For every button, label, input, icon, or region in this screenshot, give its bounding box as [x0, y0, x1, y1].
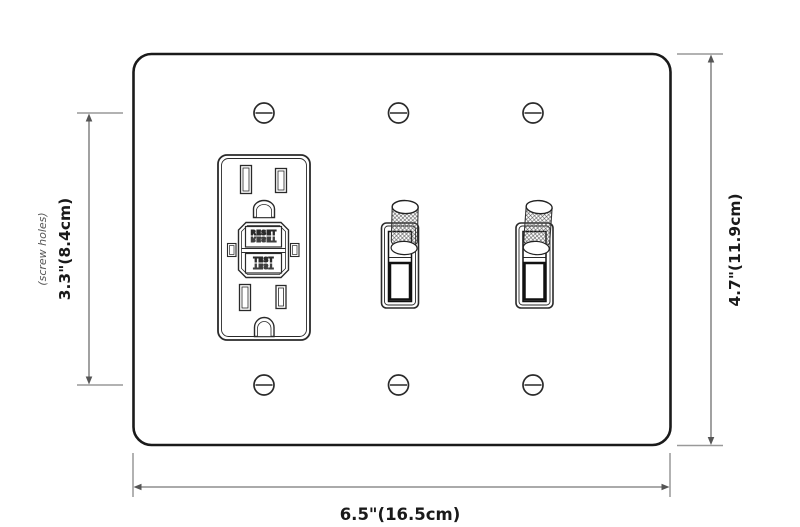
screw-holes-note: (screw holes): [36, 212, 49, 285]
arrow-down-icon: [86, 377, 93, 385]
gfci-test-label-mirror: TEST: [253, 262, 273, 270]
gfci-reset-button: RESET RESET: [246, 227, 282, 248]
plate-height-label: 4.7"(11.9cm): [726, 193, 744, 306]
arrow-right-icon: [662, 484, 670, 491]
screw-bottom-right-icon: [523, 375, 543, 395]
screw-top-left-icon: [254, 103, 274, 123]
gfci-bottom-ground-hole: [255, 318, 275, 337]
screw-bottom-center-icon: [389, 375, 409, 395]
gfci-reset-label-mirror: RESET: [251, 235, 277, 243]
toggle-lever-1: [391, 200, 418, 255]
gfci-test-button: TEST TEST: [246, 254, 282, 274]
toggle-lever-2: [523, 200, 553, 256]
gfci-top-ground-hole: [254, 201, 275, 218]
diagram-canvas: RESET RESET TEST TEST: [0, 0, 800, 527]
wall-plate-diagram: RESET RESET TEST TEST: [0, 0, 800, 527]
screw-top-right-icon: [523, 103, 543, 123]
dim-width: 6.5"(16.5cm): [133, 453, 670, 524]
screw-spacing-label: 3.3"(8.4cm): [56, 198, 74, 301]
arrow-left-icon: [134, 484, 142, 491]
dim-height: 4.7"(11.9cm): [677, 54, 744, 446]
arrow-up-icon: [708, 55, 715, 63]
plate-width-label: 6.5"(16.5cm): [340, 505, 461, 524]
arrow-down-icon: [708, 437, 715, 445]
screw-top-center-icon: [389, 103, 409, 123]
gfci-outlet: RESET RESET TEST TEST: [218, 155, 310, 340]
arrow-up-icon: [86, 114, 93, 122]
dim-screw-spacing: 3.3"(8.4cm) (screw holes): [36, 113, 123, 385]
screw-bottom-left-icon: [254, 375, 274, 395]
